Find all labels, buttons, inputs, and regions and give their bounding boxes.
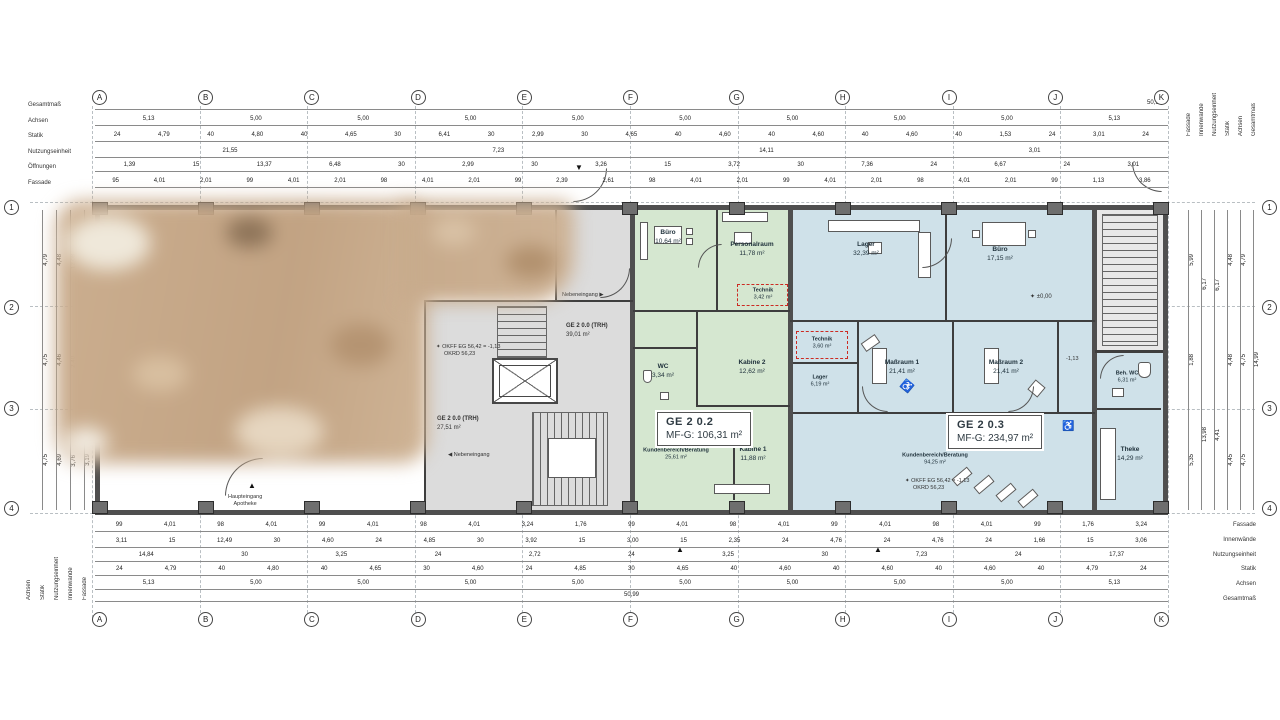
wall: [1092, 205, 1097, 515]
dim-value: 14,84: [139, 551, 154, 561]
dim-value: 4,60: [719, 131, 731, 141]
dim-row-label: Fassade: [1182, 522, 1256, 528]
dim-col-label: Nutzungseinheit: [1212, 58, 1218, 136]
axis-circle: G: [729, 90, 744, 105]
dim-value: 15: [664, 161, 671, 171]
room-label: Kabine 111,88 m²: [739, 446, 766, 464]
dim-value: 5,00: [572, 579, 584, 589]
dim-value: 5,35: [1189, 454, 1195, 466]
staircase: [497, 306, 547, 358]
dim-value: 24: [375, 537, 382, 547]
dim-value: 6,17: [1215, 279, 1221, 291]
dim-value: 4,01: [288, 177, 300, 187]
dim-value: 5,00: [1001, 579, 1013, 589]
dim-value: 5,00: [572, 115, 584, 125]
dim-value: 40: [935, 565, 942, 575]
wall: [633, 310, 790, 312]
dim-value: 5,00: [465, 579, 477, 589]
dim-value: 4,79: [43, 254, 49, 266]
dim-value: 4,60: [984, 565, 996, 575]
room-label: Lager32,39 m²: [853, 241, 879, 259]
wall: [945, 210, 947, 320]
toilet: [643, 370, 652, 383]
axis-circle: K: [1154, 612, 1169, 627]
dim-row-achsen-top: 5,135,005,005,005,005,005,005,005,005,13: [95, 114, 1168, 126]
dim-value: 40: [675, 131, 682, 141]
dim-value: 40: [301, 131, 308, 141]
dim-row-label: Statik: [1182, 566, 1256, 572]
column: [410, 501, 426, 514]
blurred-region: [402, 201, 574, 303]
dim-value: 4,60: [882, 565, 894, 575]
dim-row-statik-top: 244,79404,80404,65306,41302,99304,65404,…: [95, 130, 1168, 142]
direction-triangle-icon: ▲: [248, 482, 256, 490]
room-label: Büro17,15 m²: [987, 246, 1013, 264]
dim-value: 1,13: [1093, 177, 1105, 187]
dim-value: 4,01: [164, 521, 176, 531]
dim-value: 4,01: [690, 177, 702, 187]
desk: [982, 222, 1026, 246]
axis-circle: 3: [4, 401, 19, 416]
dim-value: 98: [217, 521, 224, 531]
dim-value: 14,11: [759, 147, 774, 157]
dim-value: 30: [241, 551, 248, 561]
dim-value: 24: [1140, 565, 1147, 575]
dim-col-label: Fassade: [82, 528, 88, 600]
dim-value: 3,72: [728, 161, 740, 171]
dim-value: 40: [730, 565, 737, 575]
dim-value: 4,76: [932, 537, 944, 547]
dim-value: 3,01: [1093, 131, 1105, 141]
level-note: ✦ OKFF EG 56,42 = -1,13 OKRD 56,23: [905, 478, 969, 492]
dim-value: 99: [319, 521, 326, 531]
dim-value: 2,01: [200, 177, 212, 187]
dim-value: 24: [884, 537, 891, 547]
axis-circle: K: [1154, 90, 1169, 105]
blurred-region: [56, 201, 428, 463]
dim-value: 1,88: [1189, 354, 1195, 366]
dim-row-label: Nutzungseinheit: [28, 149, 71, 155]
dim-value: 3,92: [525, 537, 537, 547]
wall: [793, 362, 857, 364]
dim-value: 5,00: [357, 115, 369, 125]
dim-value: 15: [1087, 537, 1094, 547]
column: [1153, 501, 1169, 514]
dim-value: 5,00: [787, 115, 799, 125]
dim-row-label: Gesamtmaß: [28, 102, 71, 108]
direction-triangle-icon: ▲: [676, 546, 684, 554]
unit-label-ge202: GE 2 0.2 MF-G: 106,31 m²: [657, 412, 751, 446]
room-label: Maßraum 121,41 m²: [885, 359, 919, 377]
dim-value: 7,23: [493, 147, 505, 157]
dim-value: 15: [169, 537, 176, 547]
dim-value: 4,45: [1228, 454, 1234, 466]
direction-triangle-icon: ▲: [874, 546, 882, 554]
dim-col-label: Achsen: [26, 528, 32, 600]
dim-value: 30: [797, 161, 804, 171]
axis-circle: H: [835, 90, 850, 105]
dim-value: 5,00: [250, 115, 262, 125]
dim-value: 5,13: [143, 115, 155, 125]
dim-value: 40: [207, 131, 214, 141]
counter-theke: [1100, 428, 1116, 500]
dim-value: 24: [435, 551, 442, 561]
axis-letters-top: ABCDEFGHIJK: [92, 90, 1169, 105]
room-label: Maßraum 221,41 m²: [989, 359, 1023, 377]
main-entrance-label: HaupteingangApotheke: [228, 494, 262, 508]
dim-row-label: Achsen: [1182, 581, 1256, 587]
dim-value: 7,36: [861, 161, 873, 171]
dim-value: 5,00: [357, 579, 369, 589]
dim-value: 98: [381, 177, 388, 187]
dim-value: 4,69: [57, 454, 63, 466]
chair: [972, 230, 980, 238]
dim-value: 4,80: [267, 565, 279, 575]
dim-col-innen-right: 6,1713,98: [1201, 210, 1208, 510]
room-label: Lager6,19 m²: [811, 375, 830, 390]
dim-row-nutzung2-bottom: 14,84303,25242,72243,25307,232417,37: [95, 550, 1168, 562]
room-label: Theke14,29 m²: [1117, 446, 1143, 464]
axis-circle: B: [198, 612, 213, 627]
wall: [952, 320, 954, 412]
dim-value: 95: [112, 177, 119, 187]
dim-value: 5,00: [250, 579, 262, 589]
dim-row-label: Öffnungen: [28, 164, 71, 170]
chair: [686, 238, 693, 245]
wall: [1097, 408, 1161, 410]
dim-value: 4,79: [158, 131, 170, 141]
dim-value: 4,01: [778, 521, 790, 531]
wall: [630, 205, 635, 515]
dim-value: 1,76: [575, 521, 587, 531]
dim-value: 4,60: [813, 131, 825, 141]
dim-labels-right-top: FassadeInnenwändeNutzungseinheitStatikAc…: [1186, 58, 1257, 136]
dim-value: 15: [579, 537, 586, 547]
dim-value: 6,41: [439, 131, 451, 141]
dim-value: 3,25: [335, 551, 347, 561]
dim-value: 30: [581, 131, 588, 141]
elevator-car: [499, 365, 551, 397]
dim-value: 5,13: [143, 579, 155, 589]
dim-value: 40: [833, 565, 840, 575]
axis-circle: G: [729, 612, 744, 627]
dim-value: 5,00: [465, 115, 477, 125]
wall: [793, 412, 1095, 414]
dim-value: 5,00: [679, 115, 691, 125]
dim-value: 2,01: [468, 177, 480, 187]
dim-col-label: Innenwände: [1199, 58, 1205, 136]
column: [198, 501, 214, 514]
dim-row-label: Fassade: [28, 180, 71, 186]
dim-value: 4,60: [472, 565, 484, 575]
column: [729, 202, 745, 215]
dim-value: 4,65: [370, 565, 382, 575]
dim-value: 24: [628, 551, 635, 561]
column: [622, 501, 638, 514]
dim-col-label: Fassade: [1186, 58, 1192, 136]
axis-numbers-left: 1234: [4, 200, 19, 516]
dim-value: 4,65: [677, 565, 689, 575]
bench: [714, 484, 770, 494]
dim-col-label: Statik: [40, 528, 46, 600]
dim-value: 4,01: [879, 521, 891, 531]
dim-value: 4,01: [824, 177, 836, 187]
dim-value: 4,01: [367, 521, 379, 531]
dim-value: 4,79: [1241, 254, 1247, 266]
dim-value: 24: [985, 537, 992, 547]
dim-value: 4,01: [958, 177, 970, 187]
dim-value: 4,75: [43, 354, 49, 366]
dim-value: 30: [398, 161, 405, 171]
axis-circle: D: [411, 90, 426, 105]
axis-circle: I: [942, 90, 957, 105]
trh-label: GE 2 0.0 (TRH)39,01 m²: [566, 322, 608, 340]
dim-value: 4,01: [154, 177, 166, 187]
dim-value: 24: [1049, 131, 1056, 141]
column: [304, 501, 320, 514]
axis-circle: 3: [1262, 401, 1277, 416]
dim-value: 3,01: [1029, 147, 1041, 157]
room-label: Kundenbereich/Beratung25,61 m²: [643, 448, 709, 463]
dim-value: 5,00: [679, 579, 691, 589]
dim-value: 2,99: [532, 131, 544, 141]
dim-row-gesamt-bottom: 50,99: [95, 592, 1168, 602]
dim-value: 24: [116, 565, 123, 575]
dim-value: 7,23: [916, 551, 928, 561]
column: [835, 501, 851, 514]
dim-value: 98: [420, 521, 427, 531]
dim-value: 1,39: [124, 161, 136, 171]
dim-value: 2,61: [602, 177, 614, 187]
dim-labels-left-bottom: AchsenStatikNutzungseinheitInnenwändeFas…: [26, 528, 88, 600]
dim-col-nutzung-right: 6,174,41: [1214, 210, 1221, 510]
axis-circle: A: [92, 90, 107, 105]
dim-col-fassade-right: 5,991,885,35: [1188, 210, 1195, 510]
dim-value: 2,72: [529, 551, 541, 561]
room-label: Kundenbereich/Beratung94,25 m²: [902, 453, 968, 468]
entrance-label: ◀ Nebeneingang: [448, 452, 490, 459]
dim-value: 40: [862, 131, 869, 141]
dim-value: 98: [917, 177, 924, 187]
dim-value: 30: [394, 131, 401, 141]
dim-value: 24: [1063, 161, 1070, 171]
dim-value: 2,01: [334, 177, 346, 187]
dim-col-label: Nutzungseinheit: [54, 528, 60, 600]
axis-circle: 2: [4, 300, 19, 315]
dim-value: 40: [1038, 565, 1045, 575]
level-marker: ✦ ±0,00: [1030, 294, 1052, 302]
dim-value: 4,01: [265, 521, 277, 531]
dim-value: 2,35: [729, 537, 741, 547]
dim-value: 30: [488, 131, 495, 141]
dim-value: 5,99: [1189, 254, 1195, 266]
dim-value: 1,53: [1000, 131, 1012, 141]
dim-value: 5,13: [1108, 579, 1120, 589]
column: [1047, 202, 1063, 215]
dim-value: 13,98: [1202, 427, 1208, 442]
axis-circle: 2: [1262, 300, 1277, 315]
wall: [1057, 320, 1059, 412]
dim-col-achsen-right: 4,794,754,75: [1240, 210, 1247, 510]
wall: [633, 347, 696, 349]
dim-value: 4,76: [830, 537, 842, 547]
sink: [660, 392, 669, 400]
dim-value: 17,37: [1109, 551, 1124, 561]
column: [729, 501, 745, 514]
level-star-icon: ✦: [1030, 294, 1035, 300]
chair: [686, 228, 693, 235]
dim-value: 3,01: [1127, 161, 1139, 171]
level-star-icon: ✦: [905, 478, 910, 484]
dim-value: 4,60: [906, 131, 918, 141]
dim-value: 99: [515, 177, 522, 187]
axis-circle: B: [198, 90, 213, 105]
sink: [1112, 388, 1124, 397]
chair: [1028, 230, 1036, 238]
dim-row-label: Nutzungseinheit: [1182, 552, 1256, 558]
dim-value: 4,65: [626, 131, 638, 141]
dim-value: 30: [423, 565, 430, 575]
dim-value: 3,86: [1139, 177, 1151, 187]
dim-row-nutzung-top: 21,557,2314,113,01: [95, 146, 1168, 158]
dim-value: 4,65: [345, 131, 357, 141]
dim-value: 30: [531, 161, 538, 171]
column: [835, 202, 851, 215]
level-star-icon: ✦: [436, 344, 441, 350]
arrow-right-icon: ▶: [599, 292, 603, 298]
axis-circle: 1: [4, 200, 19, 215]
column: [1047, 501, 1063, 514]
dim-value: 5,00: [787, 579, 799, 589]
dim-value: 24: [930, 161, 937, 171]
dim-value: 24: [526, 565, 533, 575]
dim-value: 4,01: [676, 521, 688, 531]
wall: [857, 320, 859, 412]
dim-col-label: Gesamtmaß: [1251, 58, 1257, 136]
axis-letters-bottom: ABCDEFGHIJK: [92, 612, 1169, 627]
column: [941, 501, 957, 514]
dim-row-nutzung-bottom: 3,111512,49304,60244,85303,92153,00152,3…: [95, 536, 1168, 548]
axis-circle: F: [623, 612, 638, 627]
dim-value: 2,99: [462, 161, 474, 171]
dim-value: 12,49: [217, 537, 232, 547]
dim-value: 4,60: [779, 565, 791, 575]
dim-row-innen-bottom: 994,01984,01994,01984,013,241,76994,0198…: [95, 520, 1168, 532]
dim-value: 5,00: [1001, 115, 1013, 125]
column: [941, 202, 957, 215]
dim-value: 1,76: [1082, 521, 1094, 531]
dim-col-gesamt-right: 14,99: [1253, 210, 1260, 510]
axis-circle: 4: [4, 501, 19, 516]
dim-value: 4,01: [468, 521, 480, 531]
axis-circle: E: [517, 90, 532, 105]
wall: [696, 310, 698, 407]
dim-value: 3,25: [722, 551, 734, 561]
staircase: [1102, 214, 1158, 346]
wall: [1095, 350, 1163, 353]
dim-value: 2,01: [871, 177, 883, 187]
dim-labels-right-bottom: FassadeInnenwändeNutzungseinheitStatikAc…: [1182, 522, 1256, 602]
dim-value: 99: [116, 521, 123, 531]
dim-value: 4,75: [1241, 354, 1247, 366]
dim-labels-left-top: GesamtmaßAchsenStatikNutzungseinheitÖffn…: [28, 102, 71, 186]
room-label: Büro10,64 m²: [655, 229, 681, 247]
axis-circle: H: [835, 612, 850, 627]
dim-value: 2,39: [556, 177, 568, 187]
axis-circle: E: [517, 612, 532, 627]
room-label: WC3,34 m²: [652, 363, 674, 381]
dim-value: 15: [193, 161, 200, 171]
dim-value: 99: [831, 521, 838, 531]
dim-value: 3,00: [627, 537, 639, 547]
dim-value: 24: [114, 131, 121, 141]
room-label: Technik3,60 m²: [812, 337, 832, 352]
dim-value: 4,79: [1086, 565, 1098, 575]
dim-col-label: Statik: [1225, 58, 1231, 136]
room-label: Kabine 212,62 m²: [738, 359, 765, 377]
dim-value: 6,17: [1202, 278, 1208, 290]
dim-value: 3,24: [1135, 521, 1147, 531]
axis-circle: J: [1048, 612, 1063, 627]
dim-value: 4,85: [574, 565, 586, 575]
dim-row-oeffnungen-top: 1,391513,376,48302,99303,26153,72307,362…: [95, 160, 1168, 172]
dim-value: 24: [782, 537, 789, 547]
direction-triangle-icon: ▼: [575, 164, 583, 172]
wheelchair-icon: ♿: [1062, 422, 1074, 432]
dim-row-achsen-bottom: 5,135,005,005,005,005,005,005,005,005,13: [95, 578, 1168, 590]
dim-value: 4,01: [981, 521, 993, 531]
floor-plan-sheet: Kälte Heizung Kälte Heizung ♿ ♿ Büro10,6…: [0, 0, 1280, 720]
unit-label-ge203: GE 2 0.3 MF-G: 234,97 m²: [948, 415, 1042, 449]
dim-value: 4,79: [165, 565, 177, 575]
dim-value: 24: [1015, 551, 1022, 561]
dim-col-achsen-left: 4,794,754,75: [42, 210, 49, 510]
elevator: [492, 358, 558, 404]
dim-value: 30: [477, 537, 484, 547]
axis-circle: I: [942, 612, 957, 627]
dim-row-statik-bottom: 244,79404,80404,65304,60244,85304,65404,…: [95, 564, 1168, 576]
dim-col-label: Achsen: [1238, 58, 1244, 136]
column: [622, 202, 638, 215]
dim-value: 13,37: [257, 161, 272, 171]
axis-circle: C: [304, 612, 319, 627]
level-marker: -1,13: [1066, 356, 1079, 363]
dim-value: 5,13: [1108, 115, 1120, 125]
wall: [788, 205, 793, 515]
column: [516, 501, 532, 514]
dim-value: 21,55: [223, 147, 238, 157]
dim-col-statik-right: 4,484,484,45: [1227, 210, 1234, 510]
axis-circle: C: [304, 90, 319, 105]
dim-value: 99: [1051, 177, 1058, 187]
dim-value: 1,66: [1034, 537, 1046, 547]
dim-value: 4,01: [422, 177, 434, 187]
dim-value: 3,06: [1135, 537, 1147, 547]
axis-circle: D: [411, 612, 426, 627]
dim-value: 3,24: [522, 521, 534, 531]
dim-value: 99: [628, 521, 635, 531]
dim-value: 4,48: [1228, 354, 1234, 366]
dim-value: 40: [955, 131, 962, 141]
dim-row-label: Statik: [28, 133, 71, 139]
column: [92, 501, 108, 514]
dim-value: 30: [628, 565, 635, 575]
dim-value: 6,48: [329, 161, 341, 171]
dim-value: 4,75: [1241, 454, 1247, 466]
dim-value: 40: [768, 131, 775, 141]
dim-row-label: Innenwände: [1182, 537, 1256, 543]
dim-value: 2,01: [1005, 177, 1017, 187]
